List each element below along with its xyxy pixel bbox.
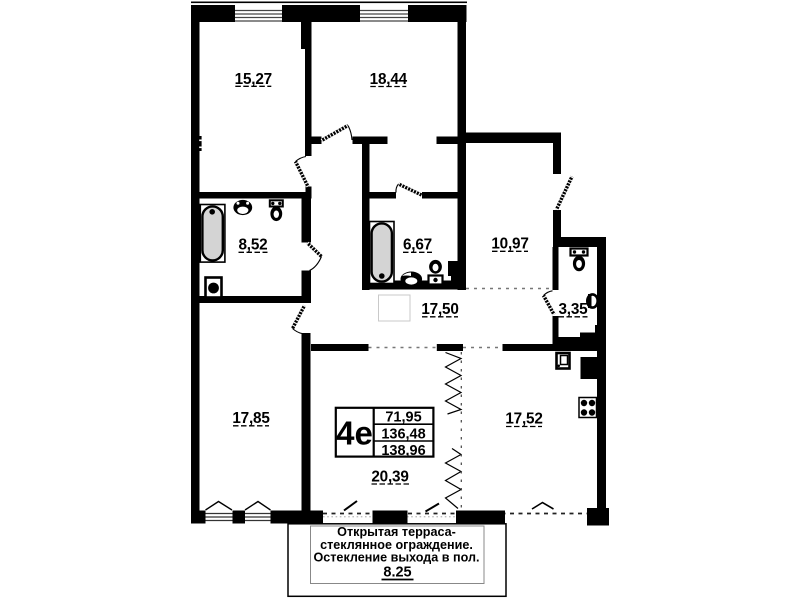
svg-text:10,97: 10,97 bbox=[491, 236, 528, 253]
svg-text:17,50: 17,50 bbox=[421, 301, 458, 318]
svg-text:15,27: 15,27 bbox=[235, 71, 272, 88]
svg-text:3,35: 3,35 bbox=[559, 301, 589, 318]
svg-text:20,39: 20,39 bbox=[371, 469, 408, 486]
svg-text:138,96: 138,96 bbox=[381, 443, 425, 459]
svg-text:4е: 4е bbox=[336, 415, 373, 452]
svg-text:136,48: 136,48 bbox=[381, 426, 425, 442]
svg-text:18,44: 18,44 bbox=[370, 71, 408, 88]
svg-text:17,85: 17,85 bbox=[232, 410, 270, 427]
svg-text:8,52: 8,52 bbox=[239, 237, 268, 254]
svg-text:17,52: 17,52 bbox=[505, 411, 542, 428]
svg-text:6,67: 6,67 bbox=[403, 237, 432, 254]
svg-text:Остекление выхода в пол.: Остекление выхода в пол. bbox=[313, 551, 479, 565]
svg-text:71,95: 71,95 bbox=[385, 410, 421, 426]
svg-text:8.25: 8.25 bbox=[383, 565, 411, 581]
